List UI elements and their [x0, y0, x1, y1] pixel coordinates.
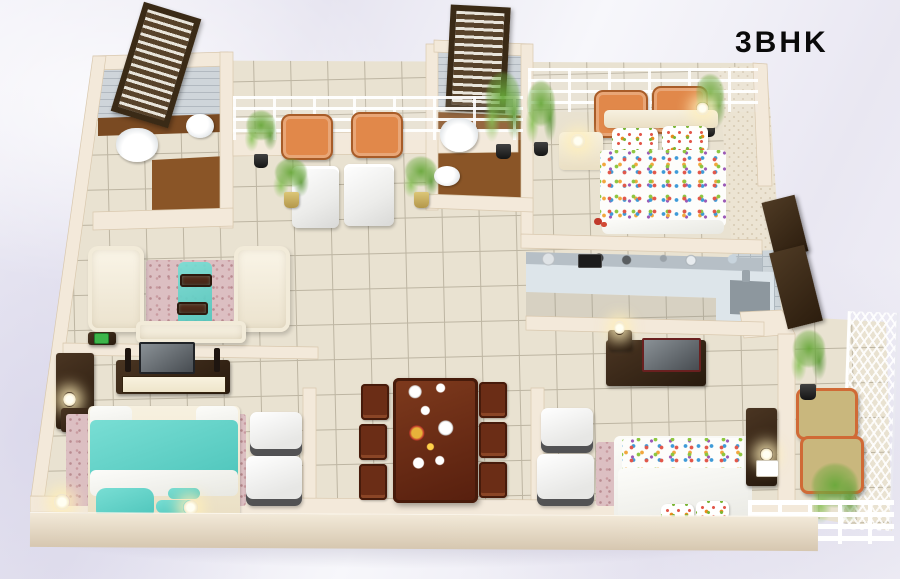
dining-chair-left-2: [359, 424, 387, 460]
bedroom2-pillow-small-2: [168, 488, 200, 499]
apartment-plan: [30, 16, 898, 576]
bedroom3-nightstand: [756, 460, 779, 477]
living-green-box: [94, 333, 109, 344]
living-sofa-long: [136, 321, 246, 343]
bathroom2-basin: [434, 166, 460, 186]
balcony-chair-orange-2: [351, 112, 403, 158]
dining-chair-right-2: [479, 422, 507, 458]
bathroom1-toilet: [116, 128, 158, 162]
lounge-plant-pot-1: [254, 154, 268, 168]
front-wall-face: [30, 512, 818, 551]
bathroom2-toilet: [440, 118, 478, 152]
bedroom2-speaker-left: [125, 348, 131, 372]
lounge-plant-pot-3: [414, 192, 429, 208]
living-coffee-table-2: [177, 302, 208, 315]
bedroom3-shelf-lamp: [614, 321, 625, 335]
bedroom2-tv: [139, 342, 195, 374]
dining-chair-left-1: [361, 384, 389, 420]
master-plant-pot-left: [534, 142, 548, 156]
bedroom3-duvet-dotted: [622, 438, 744, 472]
living-coffee-table-1: [180, 274, 212, 287]
wall-bedroom2-right: [303, 388, 316, 514]
wall-bathroom1-bottom: [93, 208, 233, 230]
dining-chair-right-3: [479, 462, 507, 498]
bedroom2-armchair-1: [250, 412, 302, 456]
bedroom2-tv-drawer: [122, 376, 226, 393]
master-bed-foot: [602, 220, 724, 234]
bedroom2-speaker-right: [214, 348, 220, 372]
bedroom3-tv: [642, 338, 701, 372]
bedroom2-lamp-left: [54, 494, 70, 510]
kitchen-faucet: [742, 270, 750, 282]
floorplan-render: 3BHK: [0, 0, 900, 579]
master-table-lamp: [571, 134, 585, 148]
dining-chair-left-3: [359, 464, 387, 500]
master-pillow-2: [662, 126, 708, 152]
right-balcony-plant-top: [786, 322, 832, 392]
living-sofa-left: [88, 246, 144, 332]
wall-bathroom1-right: [220, 52, 233, 228]
dining-tableware: [393, 378, 478, 503]
master-floor-lamp: [696, 102, 709, 115]
bedroom3-armchair-2: [537, 454, 594, 506]
living-sofa-right: [234, 246, 290, 332]
lounge-plant-pot-2: [284, 192, 299, 208]
bedroom2-armchair-2: [246, 456, 302, 506]
right-balcony-plant-pot: [800, 384, 816, 400]
dining-chair-right-1: [479, 382, 507, 418]
bathroom1-basin: [186, 114, 214, 138]
lounge-plant-pot-4: [496, 144, 511, 159]
bedroom3-armchair-1: [541, 408, 593, 453]
lounge-chair-white-2: [344, 164, 394, 226]
kitchen-stove: [578, 254, 602, 268]
kitchen-accessories: [530, 250, 760, 270]
left-wall-lamp: [63, 392, 76, 407]
master-bed-duvet: [600, 150, 726, 226]
master-slippers: [594, 218, 602, 225]
